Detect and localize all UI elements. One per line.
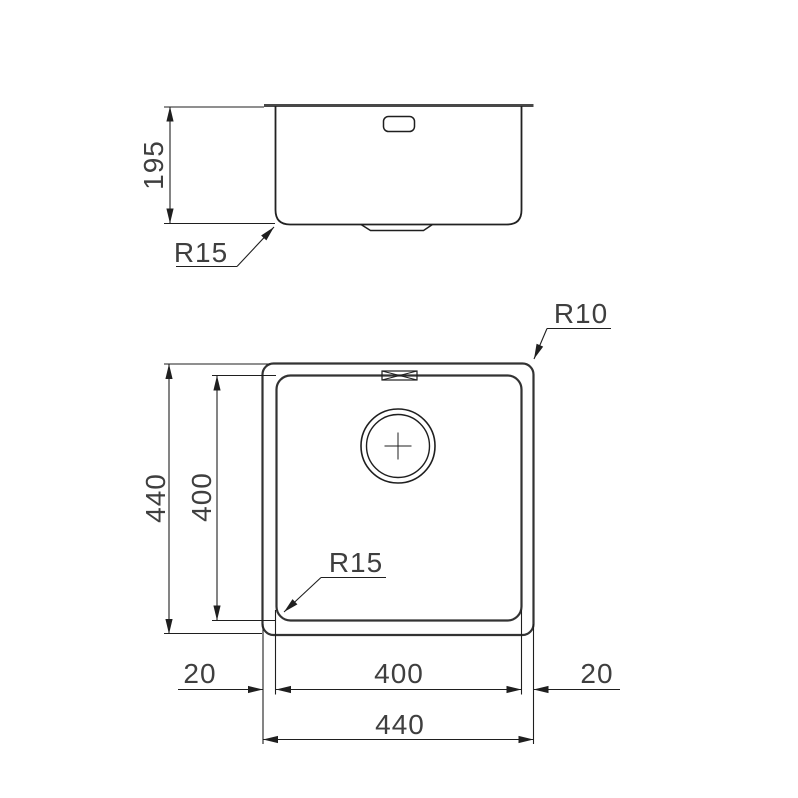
dimension-label-400-vertical: 400: [186, 472, 217, 522]
dimension-plan-bottom-row2: 440: [263, 709, 534, 740]
technical-drawing-sheet: 195 R15 R10: [0, 0, 798, 798]
radius-callout-plan-r15: R15: [284, 547, 386, 612]
side-view: 195 R15: [138, 106, 534, 269]
leader-line: [534, 329, 547, 360]
dimension-label-400-horizontal: 400: [374, 658, 424, 689]
overflow-hole-side: [384, 117, 415, 132]
dimension-plan-bottom-row1: 20 400 20: [178, 658, 620, 690]
leader-line: [284, 578, 321, 613]
plan-view: R10 R15 440 400: [140, 298, 620, 744]
radius-label-r15-plan: R15: [329, 547, 383, 578]
radius-callout-plan-r10: R10: [534, 298, 611, 359]
side-view-bowl-outline: [276, 106, 522, 225]
drain-outlet-plan: [361, 409, 435, 483]
radius-callout-side-r15: R15: [174, 227, 274, 268]
dimension-label-20-right: 20: [580, 658, 613, 689]
dimension-label-440-horizontal: 440: [375, 709, 425, 740]
radius-label-r10: R10: [554, 298, 608, 329]
sink-dimension-drawing: 195 R15 R10: [0, 0, 798, 798]
plan-bowl-edge: [277, 376, 522, 621]
dimension-side-height: 195: [138, 107, 275, 224]
dimension-label-440-vertical: 440: [140, 473, 171, 523]
dimension-label-195: 195: [138, 140, 169, 190]
radius-label-r15-side: R15: [174, 237, 228, 268]
leader-line: [237, 227, 274, 267]
dimension-label-20-left: 20: [183, 658, 216, 689]
